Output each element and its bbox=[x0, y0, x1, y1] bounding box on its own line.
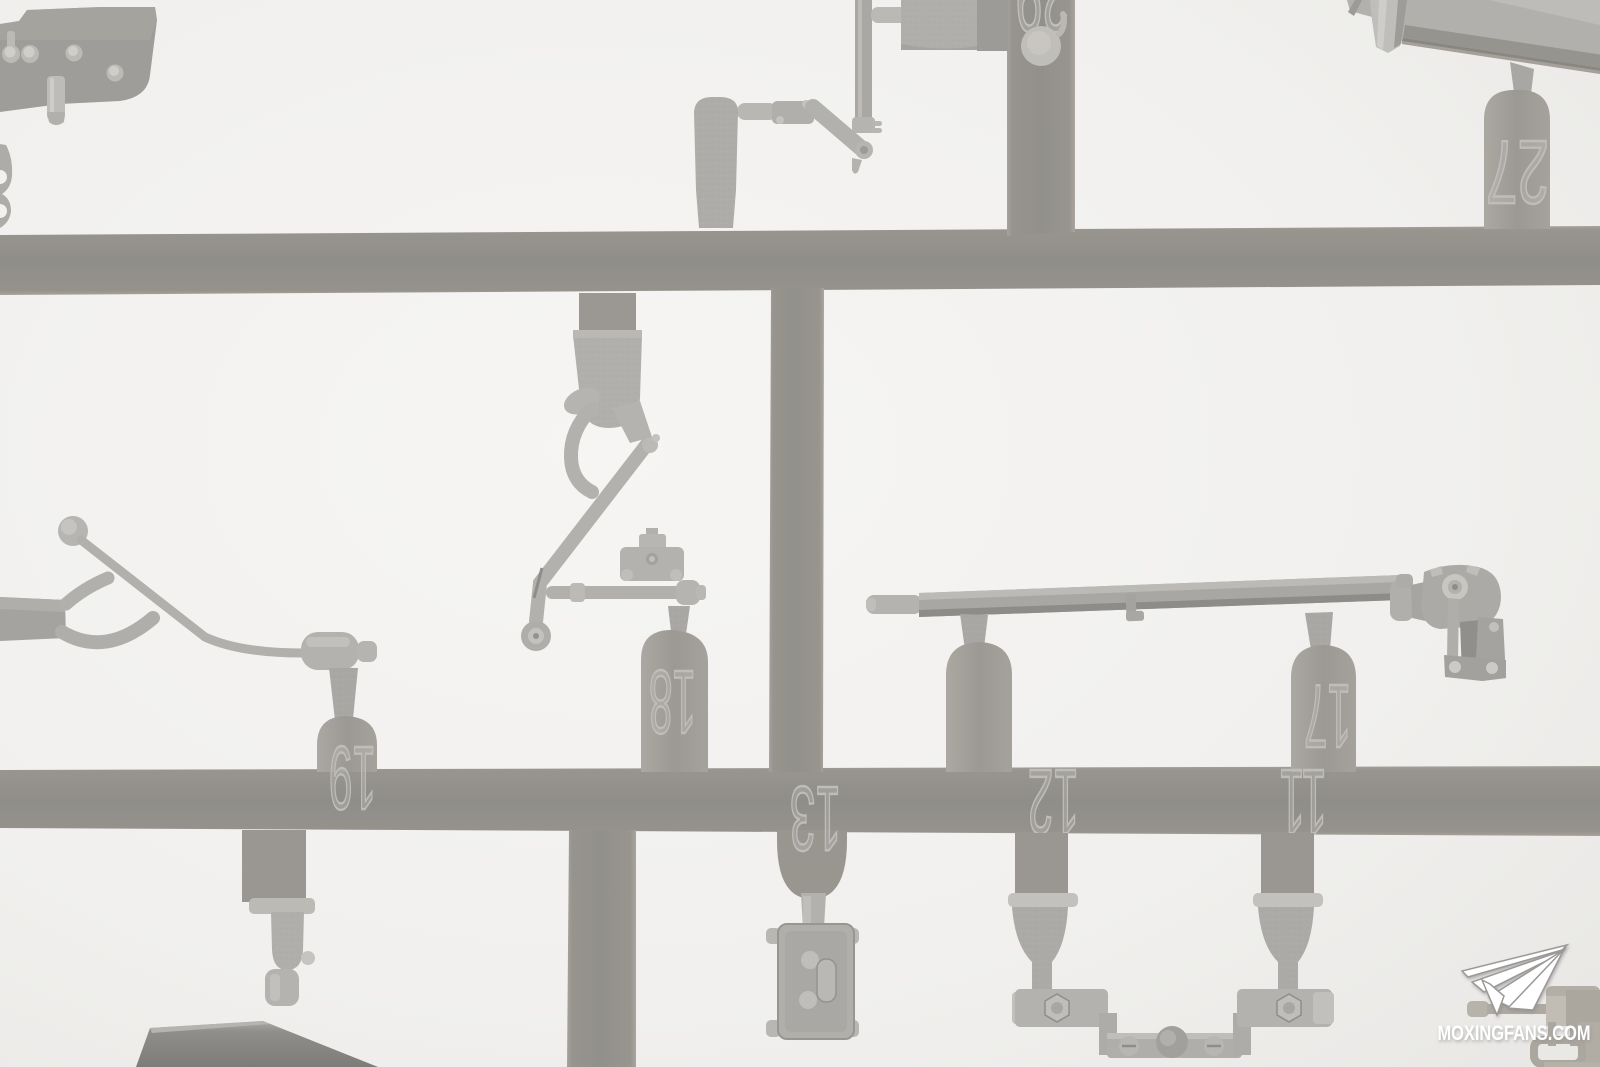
svg-text:18: 18 bbox=[649, 652, 696, 753]
svg-text:19: 19 bbox=[329, 728, 376, 829]
svg-text:13: 13 bbox=[790, 767, 841, 869]
svg-text:MOXINGFANS.COM: MOXINGFANS.COM bbox=[1438, 1022, 1591, 1045]
svg-text:27: 27 bbox=[1486, 122, 1549, 223]
